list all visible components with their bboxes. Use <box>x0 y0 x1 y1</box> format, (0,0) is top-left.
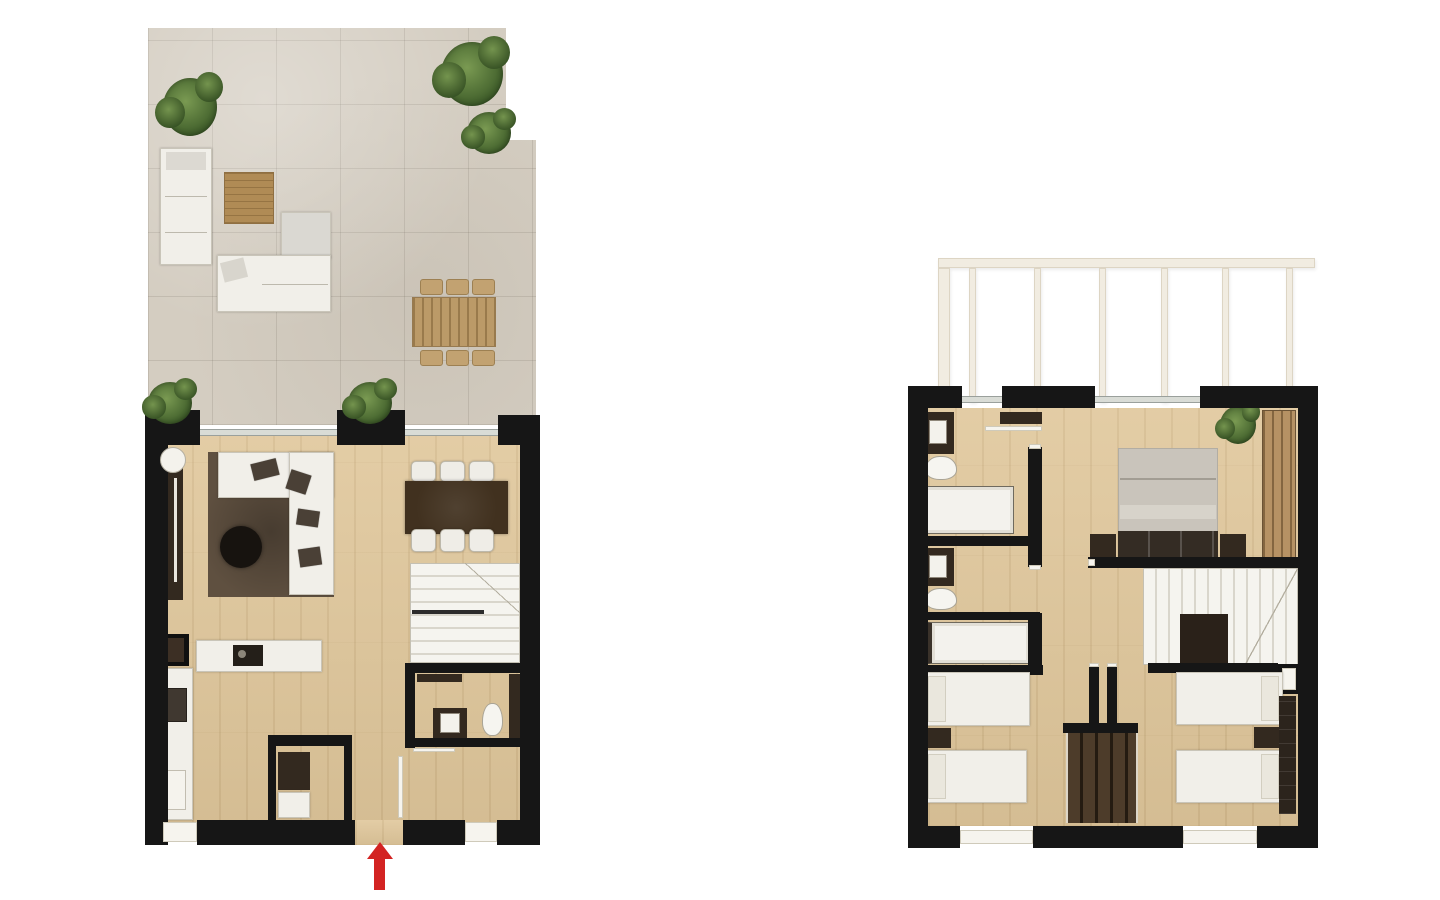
planter-plant-icon <box>148 382 192 424</box>
exterior-wall-top <box>1002 386 1095 408</box>
shower-tray <box>926 622 1030 664</box>
master-bed-sheet <box>1120 505 1216 519</box>
toilet <box>925 588 957 610</box>
sink <box>929 420 947 444</box>
exterior-wall-left <box>908 386 928 848</box>
nightstand <box>1090 534 1116 558</box>
hall-wall <box>1028 613 1042 673</box>
staircase-winder-line <box>1245 568 1298 665</box>
pergola-post <box>1286 268 1293 402</box>
tv-screen <box>174 478 177 582</box>
master-bedroom-wall <box>1088 557 1298 568</box>
bed-pillow <box>928 754 946 799</box>
window-recess <box>960 830 1033 844</box>
pergola-post <box>969 268 976 402</box>
planter-plant-icon <box>348 382 392 424</box>
bed-pillow <box>1261 754 1279 799</box>
window <box>1095 396 1200 403</box>
master-headboard <box>1118 531 1218 557</box>
staircase-void <box>1066 733 1138 823</box>
master-wardrobe <box>1262 410 1296 558</box>
staircase-rail <box>1180 614 1228 664</box>
nightstand <box>1220 534 1246 558</box>
door-frame <box>1029 444 1041 449</box>
window-recess <box>1183 830 1257 844</box>
upper-floor-plan <box>0 0 1440 900</box>
bedroom-plant-icon <box>1220 406 1256 444</box>
exterior-wall-right <box>1298 386 1318 848</box>
door-frame <box>1029 565 1041 570</box>
pergola-post <box>938 268 950 402</box>
pergola-beam <box>938 258 1315 268</box>
stairwell-wall <box>1063 723 1138 733</box>
bedroom-wardrobe <box>1279 696 1296 814</box>
nightstand <box>1254 727 1280 748</box>
pergola-post <box>1161 268 1168 402</box>
closet-mirror <box>1282 668 1296 690</box>
stairwell-wall <box>1089 666 1099 724</box>
stairwell-wall <box>1107 666 1117 724</box>
floor-lamp <box>160 447 186 473</box>
exterior-wall-bottom <box>1033 826 1183 848</box>
exterior-wall-bottom <box>1257 826 1318 848</box>
hall-wall <box>1028 447 1042 567</box>
pergola-post <box>1222 268 1229 402</box>
pergola-post <box>1099 268 1106 402</box>
floorplan-canvas <box>0 0 1440 900</box>
master-bed-fold <box>1120 478 1216 480</box>
master-bed <box>1118 448 1218 535</box>
sink <box>929 555 947 578</box>
door-frame <box>1089 663 1099 667</box>
toilet <box>925 456 957 480</box>
door-frame <box>1088 559 1095 566</box>
window <box>962 396 1002 403</box>
hall-shelf <box>985 426 1042 431</box>
nightstand <box>924 728 951 748</box>
exterior-wall-bottom <box>908 826 960 848</box>
hall-console <box>1000 412 1042 424</box>
door-frame <box>1107 663 1117 667</box>
bed-pillow <box>1261 676 1279 721</box>
bed-pillow <box>928 676 946 722</box>
shower-tray <box>924 486 1014 534</box>
pergola-post <box>1034 268 1041 402</box>
